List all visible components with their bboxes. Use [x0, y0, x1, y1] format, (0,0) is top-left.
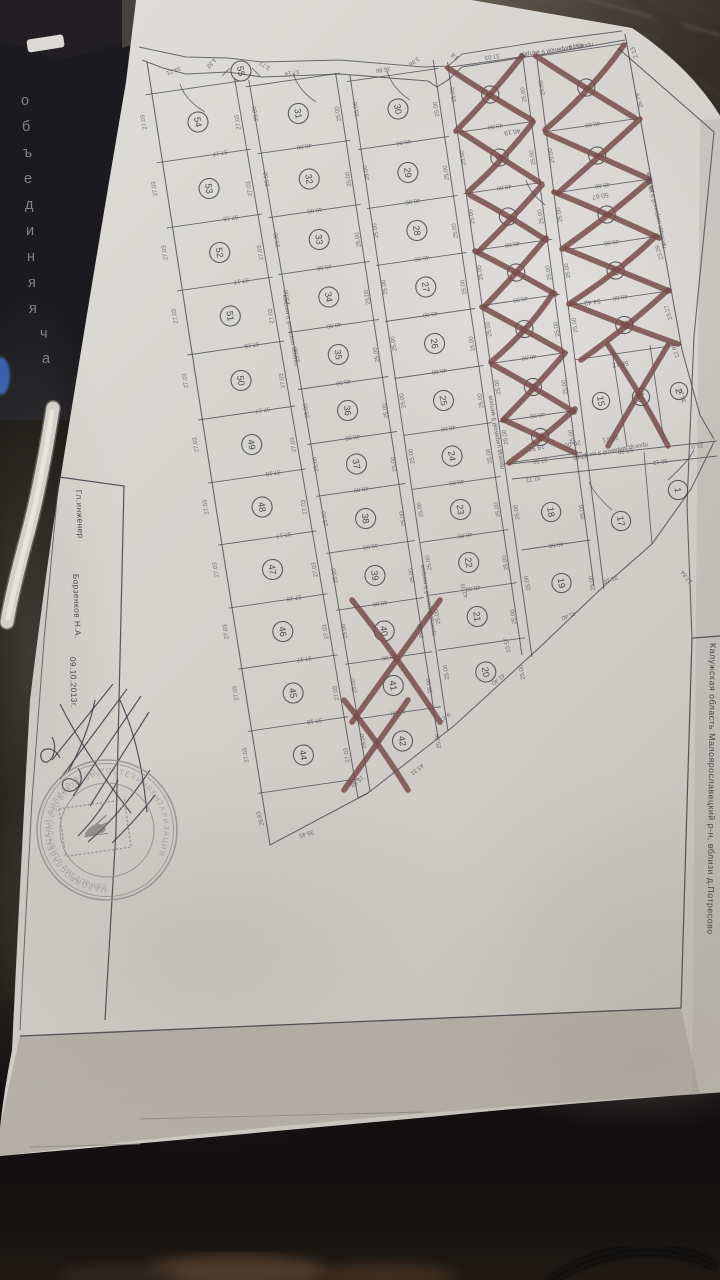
- svg-text:20: 20: [480, 666, 491, 678]
- svg-text:27: 27: [420, 281, 431, 293]
- svg-text:33: 33: [313, 234, 324, 246]
- svg-text:35: 35: [332, 349, 343, 361]
- svg-text:о: о: [21, 93, 29, 109]
- svg-text:30: 30: [392, 103, 403, 115]
- svg-text:е: е: [24, 171, 32, 187]
- svg-text:25: 25: [438, 395, 449, 407]
- svg-text:44: 44: [297, 749, 308, 761]
- svg-text:49: 49: [246, 439, 257, 451]
- svg-text:45: 45: [287, 687, 298, 699]
- svg-text:48: 48: [256, 501, 267, 513]
- svg-text:29: 29: [402, 167, 413, 179]
- svg-text:28: 28: [411, 225, 422, 237]
- svg-text:55: 55: [235, 65, 246, 77]
- svg-text:17: 17: [615, 515, 626, 527]
- svg-text:34: 34: [323, 291, 334, 303]
- svg-text:38: 38: [360, 513, 371, 525]
- svg-text:31: 31: [292, 108, 303, 120]
- svg-text:22: 22: [463, 557, 474, 569]
- svg-text:51: 51: [224, 310, 235, 322]
- svg-text:50: 50: [235, 375, 246, 387]
- svg-text:54: 54: [192, 116, 203, 128]
- svg-text:и: и: [26, 223, 34, 239]
- svg-text:53: 53: [203, 183, 214, 195]
- svg-text:ъ: ъ: [23, 145, 32, 161]
- svg-text:42: 42: [397, 735, 408, 747]
- svg-text:46: 46: [277, 626, 288, 638]
- svg-text:47: 47: [267, 564, 278, 576]
- svg-text:41: 41: [387, 680, 398, 692]
- svg-text:я: я: [28, 275, 36, 291]
- svg-text:39: 39: [369, 570, 380, 582]
- svg-text:24: 24: [446, 450, 457, 462]
- svg-text:32: 32: [303, 173, 314, 185]
- svg-text:18: 18: [545, 506, 556, 518]
- svg-text:26: 26: [429, 338, 440, 350]
- svg-text:37: 37: [351, 458, 362, 470]
- svg-text:23: 23: [455, 504, 466, 516]
- svg-text:09.10.2013г.: 09.10.2013г.: [68, 657, 78, 708]
- svg-text:б: б: [22, 119, 30, 135]
- svg-text:15: 15: [595, 395, 606, 407]
- svg-text:н: н: [27, 249, 35, 265]
- svg-text:36: 36: [342, 405, 353, 417]
- svg-text:21: 21: [471, 611, 482, 623]
- svg-text:52: 52: [214, 247, 225, 259]
- svg-text:19: 19: [556, 577, 567, 589]
- svg-text:д: д: [25, 197, 34, 213]
